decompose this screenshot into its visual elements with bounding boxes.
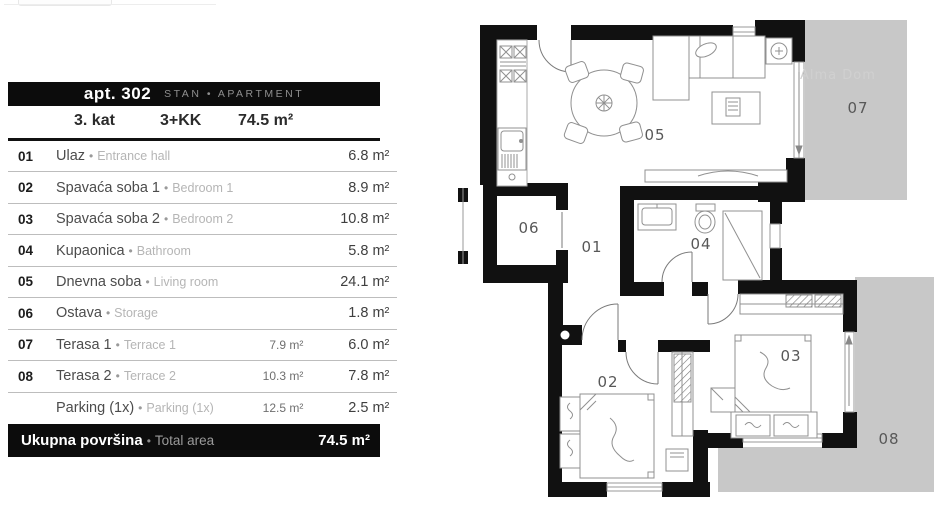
room-name-en: Living room: [154, 275, 219, 289]
room-name-hr: Terasa 2: [56, 368, 112, 384]
room-name-hr: Terasa 1: [56, 337, 112, 353]
table-row: Parking (1x)•Parking (1x) 12.5 m² 2.5 m²: [8, 393, 397, 424]
plan-label-05: 05: [644, 126, 665, 144]
entrance-door-stop: [561, 331, 570, 340]
total-label-hr: Ukupna površina: [21, 432, 143, 449]
bullet-separator: •: [129, 244, 133, 258]
room-area: 5.8 m²: [311, 243, 389, 259]
room-number: 01: [18, 149, 56, 164]
total-label-en: Total area: [155, 433, 214, 448]
bullet-separator: •: [138, 401, 142, 415]
room-name-hr: Ulaz: [56, 148, 85, 164]
room-gross-area: 7.9 m²: [233, 338, 303, 352]
plan-label-shaft: A: [498, 220, 504, 229]
plan-label-06: 06: [518, 219, 539, 237]
table-row: 08 Terasa 2•Terrace 2 10.3 m² 7.8 m²: [8, 361, 397, 392]
plan-label-03: 03: [780, 347, 801, 365]
apartment-type: STAN • APARTMENT: [164, 88, 304, 100]
total-bar: Ukupna površina•Total area 74.5 m²: [8, 424, 380, 457]
plan-label-07: 07: [847, 99, 868, 117]
panel-subheader: 3. kat 3+KK 74.5 m²: [8, 106, 380, 141]
room-area: 6.0 m²: [311, 337, 389, 353]
bullet-separator: •: [89, 149, 93, 163]
room-name-hr: Dnevna soba: [56, 274, 141, 290]
bullet-separator: •: [116, 369, 120, 383]
room-area: 2.5 m²: [311, 400, 389, 416]
room-name-en: Bedroom 1: [172, 181, 233, 195]
room-area: 10.8 m²: [311, 211, 389, 227]
room-number: 04: [18, 243, 56, 258]
room-name-en: Bedroom 2: [172, 212, 233, 226]
room-area: 7.8 m²: [311, 368, 389, 384]
room-area: 6.8 m²: [311, 148, 389, 164]
plan-label-08: 08: [878, 430, 899, 448]
room-area: 8.9 m²: [311, 180, 389, 196]
room-name-hr: Kupaonica: [56, 243, 125, 259]
room-name-en: Entrance hall: [97, 149, 170, 163]
apartment-number: apt. 302: [84, 84, 151, 104]
room-name-en: Terrace 1: [124, 338, 176, 352]
room-name-en: Terrace 2: [124, 369, 176, 383]
room-name-hr: Spavaća soba 1: [56, 180, 160, 196]
area-label: 74.5 m²: [238, 112, 293, 130]
table-row: 06 Ostava•Storage 1.8 m²: [8, 298, 397, 329]
room-name-hr: Ostava: [56, 305, 102, 321]
room-name-en: Parking (1x): [146, 401, 213, 415]
room-area: 24.1 m²: [311, 274, 389, 290]
layout-label: 3+KK: [160, 112, 201, 130]
bullet-separator: •: [145, 275, 149, 289]
table-row: 01 Ulaz•Entrance hall 6.8 m²: [8, 141, 397, 172]
room-name-hr: Spavaća soba 2: [56, 211, 160, 227]
watermark-text: Alma Dom: [800, 68, 876, 83]
bullet-separator: •: [116, 338, 120, 352]
table-row: 03 Spavaća soba 2•Bedroom 2 10.8 m²: [8, 204, 397, 235]
room-number: 06: [18, 306, 56, 321]
table-row: 07 Terasa 1•Terrace 1 7.9 m² 6.0 m²: [8, 330, 397, 361]
bullet-separator: •: [106, 306, 110, 320]
bullet-separator: •: [164, 181, 168, 195]
room-number: 03: [18, 212, 56, 227]
room-number: 07: [18, 337, 56, 352]
total-area-value: 74.5 m²: [318, 432, 370, 449]
room-gross-area: 12.5 m²: [233, 401, 303, 415]
room-number: 02: [18, 180, 56, 195]
room-name-hr: Parking (1x): [56, 400, 134, 416]
page: Alma Dom 01 02 03 04 05 06 07 08 A apt. …: [0, 0, 950, 512]
room-name-en: Bathroom: [137, 244, 191, 258]
apartment-info-panel: apt. 302 STAN • APARTMENT 3. kat 3+KK 74…: [8, 82, 380, 457]
bullet-separator: •: [164, 212, 168, 226]
plan-label-02: 02: [597, 373, 618, 391]
plan-label-01: 01: [581, 238, 602, 256]
plan-label-04: 04: [690, 235, 711, 253]
room-area: 1.8 m²: [311, 305, 389, 321]
bullet-separator: •: [147, 434, 151, 448]
room-number: 05: [18, 274, 56, 289]
table-row: 05 Dnevna soba•Living room 24.1 m²: [8, 267, 397, 298]
room-gross-area: 10.3 m²: [233, 369, 303, 383]
room-table: 01 Ulaz•Entrance hall 6.8 m² 02 Spavaća …: [8, 141, 380, 424]
room-number: 08: [18, 369, 56, 384]
table-row: 02 Spavaća soba 1•Bedroom 1 8.9 m²: [8, 172, 397, 203]
floor-label: 3. kat: [74, 112, 115, 130]
room-name-en: Storage: [114, 306, 158, 320]
panel-header: apt. 302 STAN • APARTMENT: [8, 82, 380, 106]
table-row: 04 Kupaonica•Bathroom 5.8 m²: [8, 235, 397, 266]
